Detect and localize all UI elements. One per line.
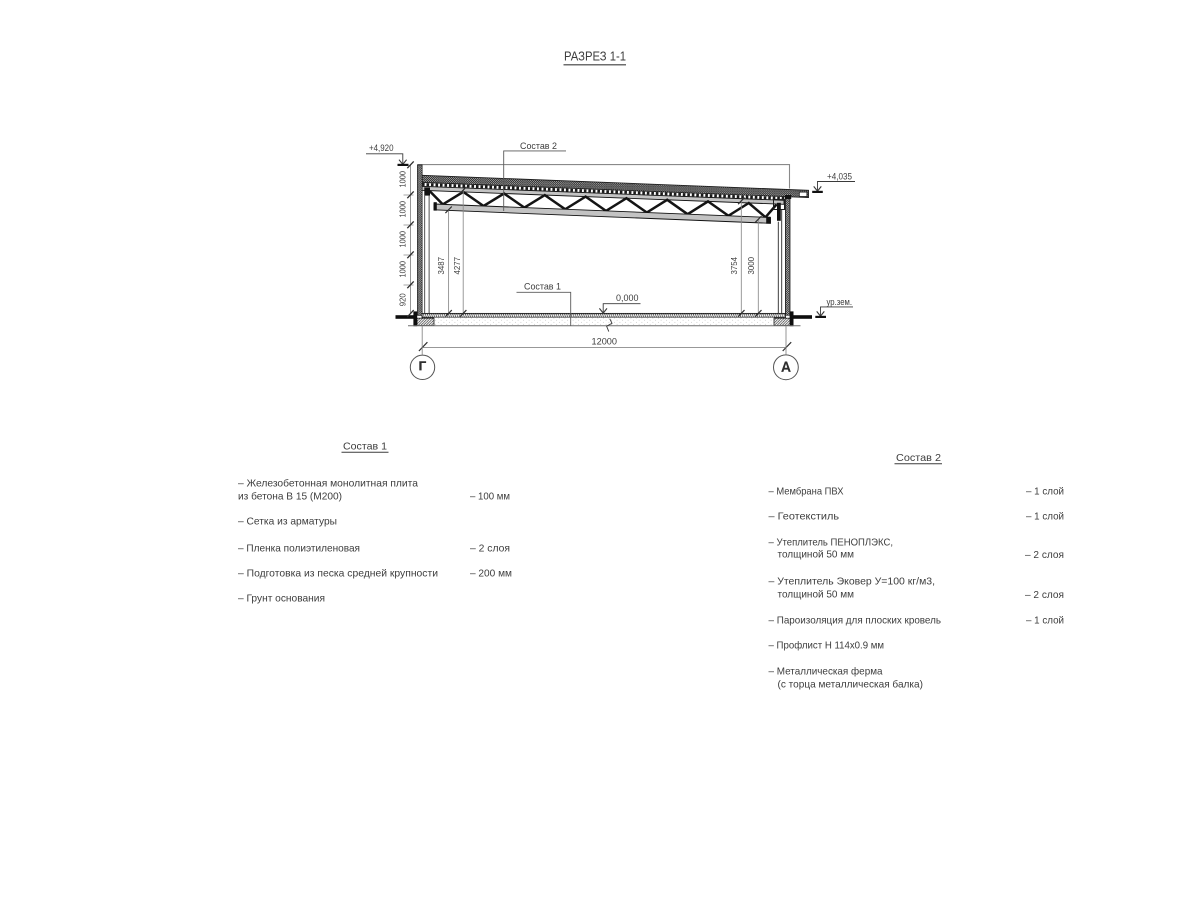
svg-text:из бетона В 15 (М200): из бетона В 15 (М200) — [238, 491, 342, 503]
svg-text:– Пленка полиэтиленовая: – Пленка полиэтиленовая — [238, 543, 360, 555]
svg-text:толщиной 50 мм: толщиной 50 мм — [778, 589, 855, 601]
svg-text:3487: 3487 — [437, 257, 446, 275]
svg-text:Состав 1: Состав 1 — [524, 282, 561, 293]
svg-text:4277: 4277 — [453, 257, 462, 275]
svg-text:920: 920 — [399, 293, 408, 306]
svg-text:+4,035: +4,035 — [827, 171, 852, 181]
svg-text:– 100 мм: – 100 мм — [470, 491, 510, 503]
svg-text:1000: 1000 — [399, 171, 408, 188]
svg-text:– Пароизоляция для плоских кро: – Пароизоляция для плоских кровель — [769, 615, 942, 627]
svg-text:– Утеплитель Эковер У=100 кг/м: – Утеплитель Эковер У=100 кг/м3, — [769, 576, 936, 588]
svg-text:– 200 мм: – 200 мм — [470, 568, 512, 580]
svg-text:– 1 слой: – 1 слой — [1026, 615, 1064, 627]
svg-text:+4,920: +4,920 — [369, 143, 394, 153]
svg-text:1000: 1000 — [399, 231, 408, 248]
svg-text:12000: 12000 — [592, 336, 618, 347]
svg-text:(с торца металлическая балка): (с торца металлическая балка) — [778, 679, 924, 691]
svg-text:– Подготовка из песка средней: – Подготовка из песка средней крупности — [238, 568, 438, 580]
svg-text:– Геотекстиль: – Геотекстиль — [769, 511, 840, 523]
svg-text:– 2 слоя: – 2 слоя — [1025, 549, 1064, 561]
svg-text:ур.зем.: ур.зем. — [827, 297, 853, 307]
svg-text:1000: 1000 — [399, 261, 408, 278]
svg-text:Состав 1: Состав 1 — [343, 441, 387, 453]
svg-text:0,000: 0,000 — [616, 293, 639, 303]
svg-text:3754: 3754 — [730, 257, 739, 275]
svg-text:– Сетка из арматуры: – Сетка из арматуры — [238, 516, 337, 528]
svg-text:Состав 2: Состав 2 — [896, 452, 941, 464]
svg-text:– 2 слоя: – 2 слоя — [470, 543, 510, 555]
svg-text:– Утеплитель ПЕНОПЛЭКС,: – Утеплитель ПЕНОПЛЭКС, — [769, 537, 894, 549]
svg-text:– Профлист Н 114х0.9 мм: – Профлист Н 114х0.9 мм — [769, 640, 885, 652]
svg-text:РАЗРЕЗ 1-1: РАЗРЕЗ 1-1 — [564, 49, 626, 64]
svg-text:1000: 1000 — [399, 201, 408, 218]
svg-text:– 1 слой: – 1 слой — [1026, 486, 1064, 498]
svg-text:– 2 слоя: – 2 слоя — [1025, 589, 1064, 601]
svg-text:– 1 слой: – 1 слой — [1026, 511, 1064, 523]
svg-text:– Железобетонная монолитная: – Железобетонная монолитная плита — [238, 478, 418, 490]
svg-text:– Мембрана ПВХ: – Мембрана ПВХ — [769, 486, 844, 498]
svg-text:3000: 3000 — [747, 257, 756, 275]
svg-text:– Грунт основания: – Грунт основания — [238, 593, 325, 605]
svg-text:толщиной 50 мм: толщиной 50 мм — [778, 549, 855, 561]
svg-text:– Металлическая ферма: – Металлическая ферма — [769, 666, 883, 678]
